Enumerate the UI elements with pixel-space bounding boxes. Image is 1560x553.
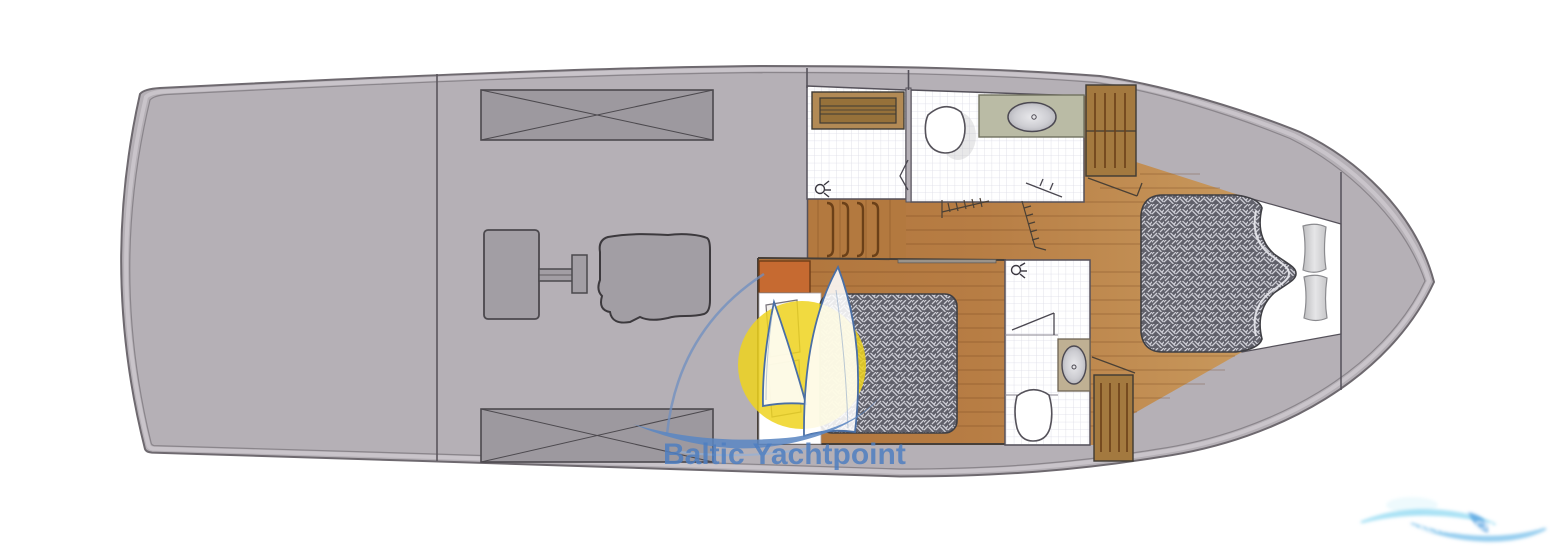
svg-text:Baltic Yachtpoint: Baltic Yachtpoint	[663, 438, 906, 471]
